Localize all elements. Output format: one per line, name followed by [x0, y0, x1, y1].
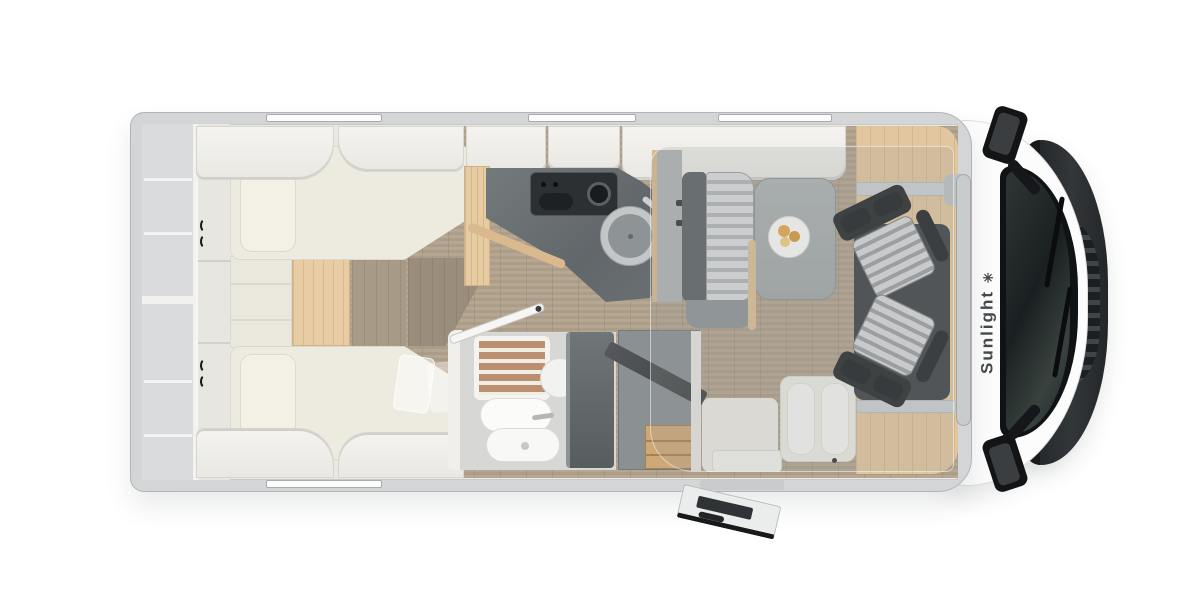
garage-shelf — [144, 178, 192, 181]
window — [266, 114, 382, 122]
brand-name: Sunlight — [979, 290, 996, 374]
door-threshold — [700, 480, 784, 490]
hob — [530, 172, 618, 216]
dashboard-strip — [956, 174, 971, 426]
shelf-seam — [231, 319, 291, 321]
mirror-face — [988, 111, 1021, 156]
hob-knob-icon — [541, 182, 546, 187]
overhead-cabinet — [196, 428, 334, 478]
mid-bed-shelf — [230, 256, 292, 348]
brand-logotype: Sunlight✳ — [974, 238, 1000, 374]
bed-step-wood — [292, 258, 350, 346]
drop-down-bed-overlay — [650, 146, 954, 472]
window — [718, 114, 832, 122]
headboard-divider — [198, 260, 232, 262]
toilet-bowl — [486, 428, 560, 462]
garage-shelf — [144, 380, 192, 383]
shelf-seam — [231, 283, 291, 285]
bed-step-gray — [352, 258, 406, 346]
window — [528, 114, 636, 122]
overhead-cabinet — [338, 432, 464, 478]
sink-drain — [628, 234, 633, 239]
hob-knob-icon — [553, 182, 558, 187]
overhead-cabinet — [338, 126, 464, 172]
garage-shelf — [144, 232, 192, 235]
garage-shelf — [144, 434, 192, 437]
window — [266, 480, 382, 488]
reading-light-icon — [200, 358, 212, 390]
burner-icon — [587, 182, 611, 206]
overhead-cabinet — [196, 126, 334, 180]
flush-button-icon — [521, 442, 529, 450]
floorplan-scene: Sunlight✳ — [0, 0, 1200, 600]
mirror-face — [988, 442, 1021, 487]
sunlight-logo-icon: ✳ — [981, 269, 994, 284]
entry-door-open — [676, 484, 781, 540]
headboard-divider — [198, 342, 232, 344]
hob-recess — [539, 193, 573, 210]
reading-light-icon — [200, 218, 212, 250]
shower-grate — [474, 336, 550, 400]
door-hinge-icon — [535, 305, 543, 313]
kitchen-overhead-cabinet — [548, 126, 620, 170]
